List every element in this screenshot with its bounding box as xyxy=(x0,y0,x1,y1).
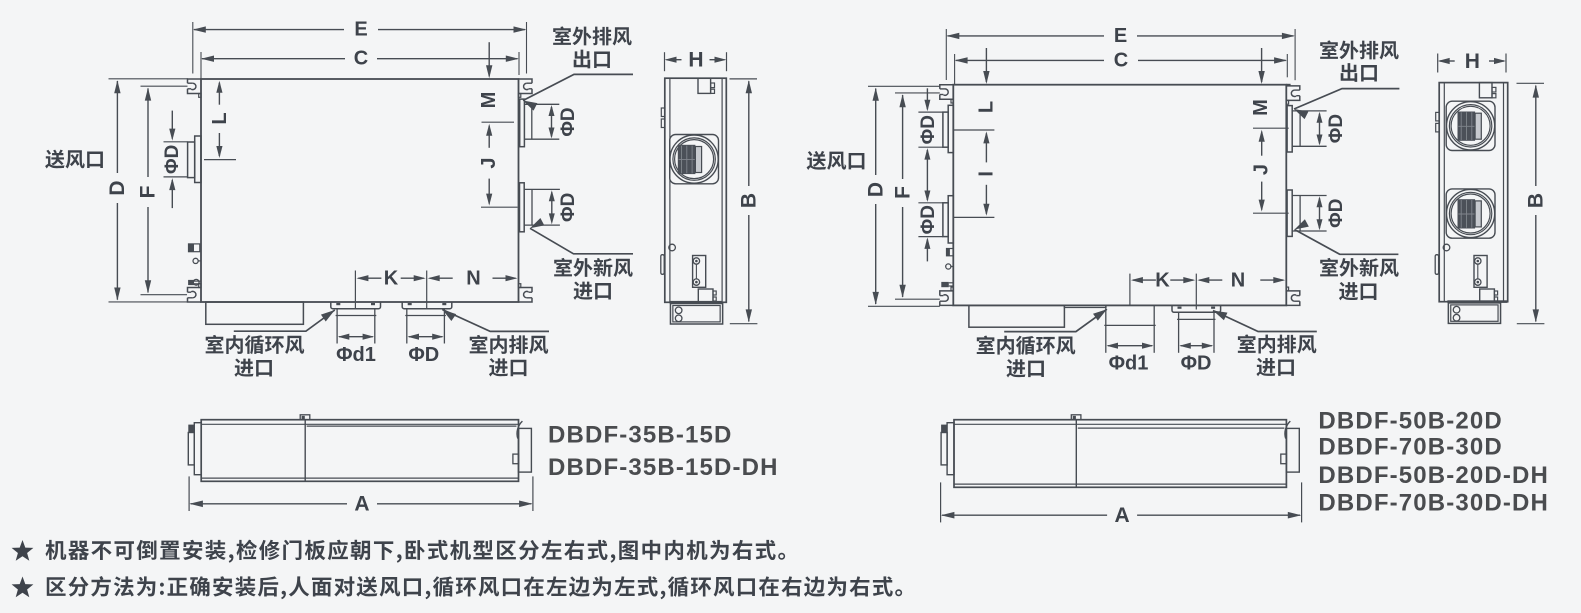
svg-text:ΦD: ΦD xyxy=(1181,352,1212,374)
svg-text:ΦD: ΦD xyxy=(558,193,579,222)
svg-text:K: K xyxy=(384,267,399,289)
svg-text:ΦD: ΦD xyxy=(408,344,439,366)
svg-text:J: J xyxy=(478,157,500,168)
svg-text:ΦD: ΦD xyxy=(1326,114,1347,143)
svg-text:M: M xyxy=(478,92,500,109)
svg-text:B: B xyxy=(737,193,760,208)
svg-text:H: H xyxy=(688,49,703,72)
svg-text:D: D xyxy=(864,182,887,197)
svg-text:F: F xyxy=(137,185,160,198)
svg-text:ΦD: ΦD xyxy=(918,205,939,234)
svg-text:I: I xyxy=(976,171,998,177)
svg-text:D: D xyxy=(106,180,129,195)
svg-text:E: E xyxy=(1114,25,1127,47)
svg-text:K: K xyxy=(1155,269,1170,291)
svg-text:ΦD: ΦD xyxy=(162,145,183,174)
svg-text:L: L xyxy=(976,101,998,113)
svg-text:F: F xyxy=(891,186,914,199)
svg-text:B: B xyxy=(1524,193,1547,208)
svg-text:E: E xyxy=(354,19,367,41)
svg-text:ΦD: ΦD xyxy=(918,115,939,144)
svg-text:N: N xyxy=(1231,269,1245,291)
svg-text:J: J xyxy=(1251,164,1273,175)
svg-text:DBDF-70B-30D: DBDF-70B-30D xyxy=(1318,433,1503,460)
svg-text:C: C xyxy=(354,48,368,70)
svg-text:C: C xyxy=(1114,49,1128,71)
svg-text:DBDF-35B-15D-DH: DBDF-35B-15D-DH xyxy=(548,454,779,481)
svg-text:Φd1: Φd1 xyxy=(1109,352,1149,374)
svg-text:L: L xyxy=(209,112,231,124)
svg-text:DBDF-35B-15D: DBDF-35B-15D xyxy=(548,422,733,449)
svg-text:Φd1: Φd1 xyxy=(336,344,376,366)
svg-text:ΦD: ΦD xyxy=(1326,199,1347,228)
svg-text:ΦD: ΦD xyxy=(558,107,579,136)
svg-text:A: A xyxy=(1115,504,1130,527)
svg-text:DBDF-70B-30D-DH: DBDF-70B-30D-DH xyxy=(1318,490,1549,517)
svg-text:N: N xyxy=(466,267,480,289)
svg-text:DBDF-50B-20D-DH: DBDF-50B-20D-DH xyxy=(1318,462,1549,489)
svg-text:M: M xyxy=(1250,99,1272,116)
svg-text:H: H xyxy=(1465,50,1480,73)
svg-text:A: A xyxy=(354,493,369,516)
svg-text:DBDF-50B-20D: DBDF-50B-20D xyxy=(1318,407,1503,434)
